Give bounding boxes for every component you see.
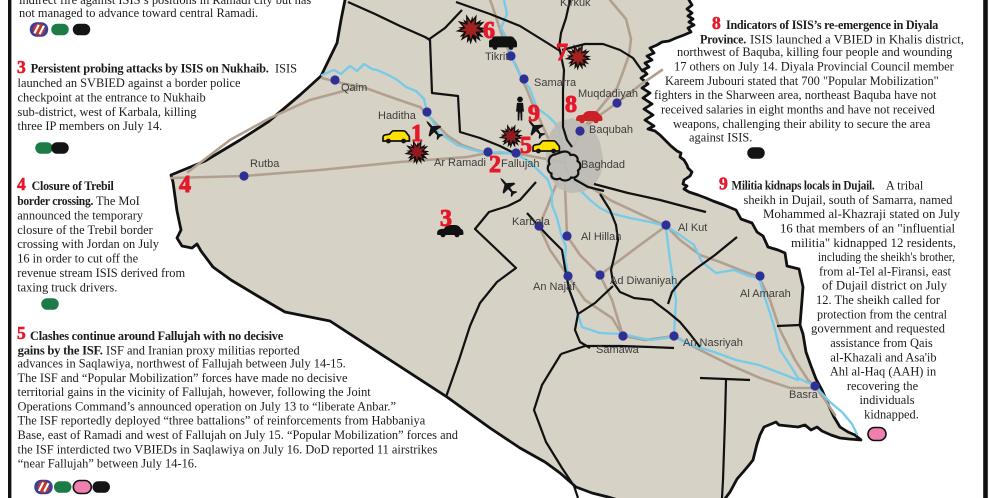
svg-text:not managed to advance toward: not managed to advance toward central Ra… bbox=[19, 6, 258, 20]
svg-text:Persistent probing attacks by: Persistent probing attacks by ISIS on Nu… bbox=[31, 62, 269, 76]
svg-text:2: 2 bbox=[489, 152, 501, 178]
svg-text:border crossing. The MoI: border crossing. The MoI bbox=[17, 194, 140, 208]
svg-text:including the sheikh's brother: including the sheikh's brother, bbox=[818, 250, 955, 264]
svg-text:12. The sheikh called for: 12. The sheikh called for bbox=[816, 293, 941, 307]
svg-text:recovering the: recovering the bbox=[847, 379, 919, 393]
svg-text:1: 1 bbox=[411, 121, 423, 147]
svg-text:territorial gains in the vicin: territorial gains in the vicinity of Fal… bbox=[18, 385, 372, 399]
svg-text:against ISIS.: against ISIS. bbox=[689, 131, 752, 145]
svg-text:kidnapped.: kidnapped. bbox=[864, 408, 919, 422]
svg-text:The ISF reportedly deployed “t: The ISF reportedly deployed “three batta… bbox=[18, 414, 426, 428]
svg-text:8: 8 bbox=[712, 13, 721, 33]
svg-text:taxing truck drivers.: taxing truck drivers. bbox=[17, 280, 117, 294]
svg-text:Basra: Basra bbox=[789, 389, 819, 401]
svg-text:4: 4 bbox=[17, 174, 26, 194]
svg-text:of Dujail district on July: of Dujail district on July bbox=[822, 279, 948, 293]
svg-text:Kareem Jubouri stated that 700: Kareem Jubouri stated that 700 "Popular … bbox=[665, 74, 939, 88]
svg-text:Baqubah: Baqubah bbox=[589, 124, 633, 136]
svg-text:9: 9 bbox=[719, 174, 728, 194]
svg-text:Samawa: Samawa bbox=[596, 344, 640, 356]
svg-text:Closure of Trebil: Closure of Trebil bbox=[32, 179, 115, 193]
svg-text:8: 8 bbox=[565, 92, 577, 118]
svg-text:Fallujah: Fallujah bbox=[501, 158, 540, 170]
svg-text:ISF and Iranian proxy militias: ISF and Iranian proxy militias reported bbox=[106, 344, 301, 358]
svg-text:Ahl al-Haq (AAH) in: Ahl al-Haq (AAH) in bbox=[830, 365, 936, 379]
svg-text:“near Fallujah” between July 1: “near Fallujah” between July 14-16. bbox=[18, 457, 197, 471]
svg-text:from al-Tel al-Firansi, east: from al-Tel al-Firansi, east bbox=[819, 264, 952, 278]
svg-text:Samarra: Samarra bbox=[534, 77, 577, 89]
svg-text:gains by the ISF.: gains by the ISF. bbox=[18, 344, 103, 358]
svg-text:4: 4 bbox=[179, 172, 191, 198]
svg-text:A tribal: A tribal bbox=[886, 179, 924, 193]
svg-text:Militia kidnaps locals in Duja: Militia kidnaps locals in Dujail. bbox=[732, 179, 875, 193]
svg-text:weapons, challenging their abi: weapons, challenging their ability to se… bbox=[673, 117, 931, 131]
svg-text:government and requested: government and requested bbox=[811, 322, 946, 336]
svg-text:the ISF interdicted two VBIEDs: the ISF interdicted two VBIEDs in Saqlaw… bbox=[18, 442, 438, 456]
svg-text:checkpoint at the entrance to: checkpoint at the entrance to Nukhaib bbox=[18, 91, 206, 105]
svg-text:3: 3 bbox=[440, 206, 452, 232]
svg-text:revenue stream ISIS derived fr: revenue stream ISIS derived from bbox=[17, 266, 185, 280]
svg-text:Qaim: Qaim bbox=[341, 82, 367, 94]
svg-text:militia" kidnapped 12 resident: militia" kidnapped 12 residents, bbox=[791, 236, 956, 250]
svg-text:5: 5 bbox=[17, 323, 26, 343]
svg-text:al-Khazali and Asa'ib: al-Khazali and Asa'ib bbox=[830, 350, 936, 364]
svg-text:Indicators of ISIS’s re-emerge: Indicators of ISIS’s re-emergence in Diy… bbox=[726, 18, 938, 32]
svg-text:crossing with Jordan on July: crossing with Jordan on July bbox=[17, 237, 160, 251]
svg-text:assistance from Qais: assistance from Qais bbox=[830, 336, 933, 350]
svg-text:3: 3 bbox=[17, 57, 26, 77]
svg-text:7: 7 bbox=[556, 40, 568, 66]
svg-text:17 others on July 14. Diyala P: 17 others on July 14. Diyala Provincial … bbox=[674, 59, 955, 73]
svg-text:closure of the Trebil border: closure of the Trebil border bbox=[17, 223, 153, 237]
svg-text:Al Kut: Al Kut bbox=[678, 222, 707, 234]
svg-text:An Najaf: An Najaf bbox=[533, 281, 576, 293]
svg-text:Muqdadiyah: Muqdadiyah bbox=[578, 88, 638, 100]
svg-text:Base, east of Ramadi and west: Base, east of Ramadi and west of Falluja… bbox=[18, 428, 459, 442]
svg-text:launched an SVBIED against a b: launched an SVBIED against a border poli… bbox=[18, 76, 241, 90]
svg-text:16 in order to cut off the: 16 in order to cut off the bbox=[17, 251, 138, 265]
svg-text:Kirkuk: Kirkuk bbox=[560, 0, 591, 9]
svg-text:sheikh in Dujail, south of Sam: sheikh in Dujail, south of Samarra, name… bbox=[744, 193, 954, 207]
svg-text:announced the temporary: announced the temporary bbox=[17, 208, 144, 222]
svg-text:6: 6 bbox=[483, 18, 495, 44]
svg-text:Ar Ramadi: Ar Ramadi bbox=[434, 157, 486, 169]
svg-text:individuals: individuals bbox=[859, 393, 914, 407]
svg-text:Al Amarah: Al Amarah bbox=[740, 288, 791, 300]
svg-text:Clashes continue around Falluj: Clashes continue around Fallujah with no… bbox=[30, 329, 284, 343]
svg-text:Rutba: Rutba bbox=[250, 158, 280, 170]
svg-text:fighters in the Sharween area,: fighters in the Sharween area, northeast… bbox=[654, 88, 937, 102]
svg-text:An Nasriyah: An Nasriyah bbox=[683, 337, 743, 349]
svg-text:Al Hillah: Al Hillah bbox=[581, 231, 621, 243]
svg-text:Tikrit: Tikrit bbox=[485, 51, 508, 63]
svg-text:The ISF and “Popular Mobilizat: The ISF and “Popular Mobilization” force… bbox=[18, 371, 348, 385]
svg-text:16 that members of an "influen: 16 that members of an "influential bbox=[780, 221, 956, 235]
svg-text:Ad Diwaniyah: Ad Diwaniyah bbox=[610, 275, 677, 287]
svg-text:ISIS: ISIS bbox=[275, 62, 297, 76]
svg-text:Mohammed al-Khazraji stated on: Mohammed al-Khazraji stated on July bbox=[763, 207, 961, 221]
svg-text:Baghdad: Baghdad bbox=[581, 159, 625, 171]
svg-text:three IP members on July 14.: three IP members on July 14. bbox=[18, 119, 163, 133]
svg-text:9: 9 bbox=[528, 101, 540, 127]
svg-text:protection from the central: protection from the central bbox=[817, 307, 948, 321]
svg-text:northwest of Baquba, killing f: northwest of Baquba, killing four people… bbox=[677, 45, 952, 59]
svg-text:received salaries in eight mon: received salaries in eight months and ha… bbox=[661, 103, 936, 117]
svg-text:Operations Command’s announced: Operations Command’s announced operation… bbox=[18, 400, 397, 414]
svg-text:sub-district, west of Karbala,: sub-district, west of Karbala, killing bbox=[18, 105, 197, 119]
svg-text:5: 5 bbox=[520, 133, 532, 159]
svg-text:Karbala: Karbala bbox=[512, 216, 551, 228]
svg-text:advances in Saqlawiya, northwe: advances in Saqlawiya, northwest of Fall… bbox=[18, 357, 346, 371]
